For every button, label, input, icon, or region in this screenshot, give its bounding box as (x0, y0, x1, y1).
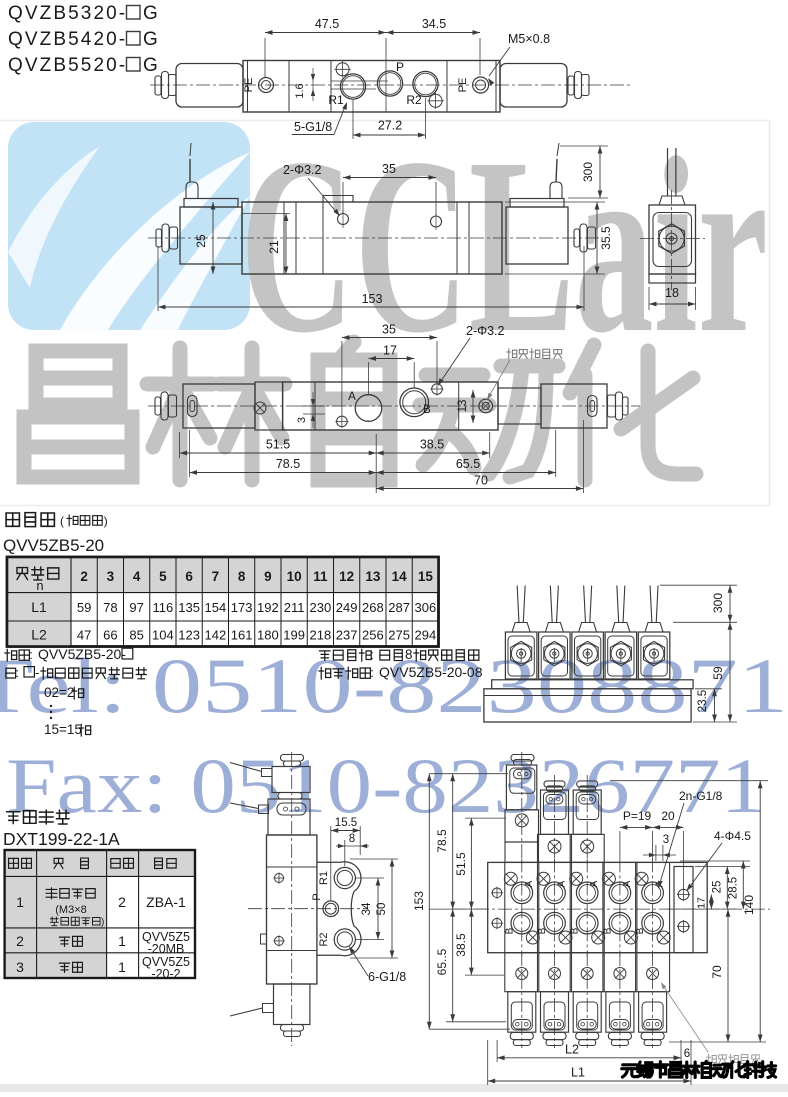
svg-text:B: B (635, 927, 646, 934)
svg-text:A: A (589, 880, 600, 887)
svg-text:R1: R1 (328, 93, 344, 107)
svg-text:25: 25 (712, 881, 724, 894)
svg-text:L1: L1 (31, 599, 47, 615)
svg-text:A: A (524, 880, 535, 887)
svg-text:B: B (537, 927, 548, 934)
svg-text:135: 135 (178, 600, 200, 615)
svg-text:17: 17 (383, 344, 397, 358)
svg-text:02=2: 02=2 (44, 685, 74, 700)
svg-text:256: 256 (362, 628, 384, 643)
svg-text:12: 12 (339, 569, 354, 584)
svg-text:78.5: 78.5 (276, 457, 300, 471)
svg-text:59: 59 (77, 600, 91, 615)
svg-text:QVV5ZB5-20-: QVV5ZB5-20- (38, 646, 126, 662)
svg-text:211: 211 (284, 600, 305, 615)
svg-text:249: 249 (336, 600, 358, 615)
svg-text:DXT199-22-1A: DXT199-22-1A (3, 829, 120, 849)
svg-text:3: 3 (663, 834, 669, 846)
svg-text:35: 35 (382, 323, 396, 337)
svg-text:B: B (504, 927, 515, 934)
svg-text:8: 8 (238, 569, 246, 584)
svg-text:A: A (557, 880, 568, 887)
svg-text:G: G (143, 55, 158, 76)
svg-text:218: 218 (310, 628, 332, 643)
svg-text:142: 142 (205, 628, 227, 643)
svg-text:B: B (570, 927, 581, 934)
svg-text:G: G (143, 29, 158, 50)
svg-text:153: 153 (362, 292, 383, 306)
svg-text:4: 4 (133, 569, 141, 584)
svg-text:18: 18 (665, 286, 679, 300)
svg-text:199: 199 (283, 628, 305, 643)
svg-text:P: P (311, 893, 323, 900)
svg-text:59: 59 (711, 666, 725, 680)
svg-text:L1: L1 (571, 1066, 585, 1080)
svg-text:35.5: 35.5 (599, 226, 613, 250)
svg-text:3: 3 (296, 417, 308, 423)
svg-text:1: 1 (16, 894, 24, 910)
svg-text:23.5: 23.5 (697, 690, 709, 712)
svg-text:275: 275 (388, 628, 410, 643)
svg-text:3: 3 (16, 959, 24, 975)
svg-text:R2: R2 (406, 93, 422, 107)
svg-text:28.5: 28.5 (728, 877, 740, 899)
svg-text:6: 6 (185, 569, 193, 584)
svg-text:173: 173 (231, 600, 253, 615)
svg-text:A: A (348, 391, 356, 403)
svg-text:Fax: 0510-82326771: Fax: 0510-82326771 (6, 742, 766, 829)
svg-text:50: 50 (376, 903, 388, 916)
svg-text:2: 2 (118, 894, 126, 910)
svg-text:38.5: 38.5 (454, 933, 468, 957)
svg-text:n: n (36, 578, 43, 593)
svg-text:13: 13 (365, 569, 381, 584)
svg-text:QVZB5320-: QVZB5320- (8, 3, 127, 24)
svg-text:P=19: P=19 (623, 809, 652, 823)
svg-text:(M3×8: (M3×8 (55, 904, 87, 916)
svg-text:35: 35 (382, 162, 396, 176)
svg-text:1.6: 1.6 (294, 83, 306, 98)
svg-text:17: 17 (696, 897, 708, 909)
svg-text:1: 1 (118, 933, 126, 949)
svg-text:287: 287 (388, 600, 410, 615)
svg-text:154: 154 (205, 600, 227, 615)
svg-text:A: A (622, 880, 633, 887)
svg-text:2: 2 (16, 933, 24, 949)
svg-text:237: 237 (336, 628, 358, 643)
svg-text:300: 300 (581, 162, 595, 182)
svg-text:65.5: 65.5 (456, 457, 480, 471)
svg-text:20: 20 (661, 809, 675, 823)
svg-text::: : (370, 665, 374, 680)
svg-text:116: 116 (153, 600, 174, 615)
svg-text:6: 6 (684, 1048, 690, 1060)
svg-text:180: 180 (257, 628, 279, 643)
svg-text:38.5: 38.5 (420, 438, 444, 452)
svg-text:5: 5 (159, 569, 167, 584)
svg-text:34: 34 (361, 902, 373, 915)
svg-text::: : (29, 647, 33, 662)
svg-text::: : (15, 665, 19, 680)
svg-text:85: 85 (129, 628, 143, 643)
svg-text:6-G1/8: 6-G1/8 (368, 970, 406, 984)
svg-text:7: 7 (212, 569, 220, 584)
svg-text:QVZB5520-: QVZB5520- (8, 55, 127, 76)
svg-text:306: 306 (415, 600, 437, 615)
svg-text:M5×0.8: M5×0.8 (508, 32, 550, 46)
svg-text:R2: R2 (318, 932, 330, 946)
svg-text:70: 70 (474, 474, 488, 488)
svg-text:QVV5ZB5-20: QVV5ZB5-20 (3, 536, 104, 555)
svg-text:70: 70 (710, 965, 724, 979)
svg-text:R1: R1 (318, 871, 330, 885)
svg-text:G: G (143, 3, 158, 24)
svg-text:161: 161 (231, 628, 253, 643)
svg-text:2n-G1/8: 2n-G1/8 (679, 789, 723, 803)
svg-text:230: 230 (310, 600, 332, 615)
svg-text:L2: L2 (31, 627, 47, 643)
svg-text:65..5: 65..5 (435, 948, 449, 975)
svg-text:13: 13 (457, 400, 469, 413)
svg-text:47.5: 47.5 (315, 17, 339, 31)
svg-text:4-Φ4.5: 4-Φ4.5 (714, 829, 751, 843)
svg-text:51.5: 51.5 (266, 438, 290, 452)
svg-text:153: 153 (412, 891, 426, 911)
svg-text:21: 21 (267, 240, 281, 254)
svg-text:25: 25 (194, 234, 208, 248)
svg-text:): ) (101, 917, 104, 928)
svg-text:123: 123 (178, 628, 200, 643)
svg-text:): ) (104, 514, 108, 528)
svg-text:2-Φ3.2: 2-Φ3.2 (283, 163, 322, 177)
svg-text:-20MB: -20MB (148, 942, 185, 956)
svg-text:2: 2 (80, 569, 88, 584)
svg-text:104: 104 (152, 628, 174, 643)
svg-text:-20-2: -20-2 (151, 967, 180, 981)
svg-text:192: 192 (257, 600, 279, 615)
svg-text:11: 11 (313, 569, 328, 584)
svg-text:2-Φ3.2: 2-Φ3.2 (466, 324, 505, 338)
svg-text:300: 300 (711, 593, 725, 613)
svg-text:78.5: 78.5 (435, 829, 449, 853)
svg-text:3: 3 (107, 569, 115, 584)
svg-text:51.5: 51.5 (454, 852, 468, 876)
svg-text:66: 66 (103, 628, 117, 643)
svg-text:47: 47 (77, 628, 91, 643)
svg-text:14: 14 (392, 569, 408, 584)
svg-text:1: 1 (118, 959, 126, 975)
svg-text::: : (370, 647, 374, 662)
svg-text:QVZB5420-: QVZB5420- (8, 29, 127, 50)
svg-text:(: ( (60, 514, 64, 528)
svg-text:ZBA-1: ZBA-1 (146, 894, 186, 910)
svg-text:8: 8 (405, 647, 413, 662)
svg-text:CCLair: CCLair (240, 105, 768, 385)
svg-text:P: P (396, 60, 404, 74)
svg-text:-: - (35, 665, 39, 680)
svg-text:10: 10 (287, 569, 302, 584)
svg-text:B: B (602, 927, 613, 934)
svg-text:5-G1/8: 5-G1/8 (294, 120, 332, 134)
svg-text:15: 15 (418, 569, 434, 584)
svg-text:268: 268 (362, 600, 384, 615)
svg-text:15=15: 15=15 (44, 722, 82, 737)
svg-text:8: 8 (349, 833, 355, 845)
svg-text:15.5: 15.5 (335, 817, 357, 829)
svg-text:QVV5ZB5-20-08: QVV5ZB5-20-08 (379, 664, 483, 680)
svg-text:97: 97 (129, 600, 143, 615)
svg-text:34.5: 34.5 (422, 17, 446, 31)
svg-text:78: 78 (103, 600, 117, 615)
svg-text:9: 9 (264, 569, 272, 584)
svg-text:27.2: 27.2 (378, 119, 402, 133)
svg-text:294: 294 (415, 628, 437, 643)
svg-text:L2: L2 (565, 1043, 579, 1057)
